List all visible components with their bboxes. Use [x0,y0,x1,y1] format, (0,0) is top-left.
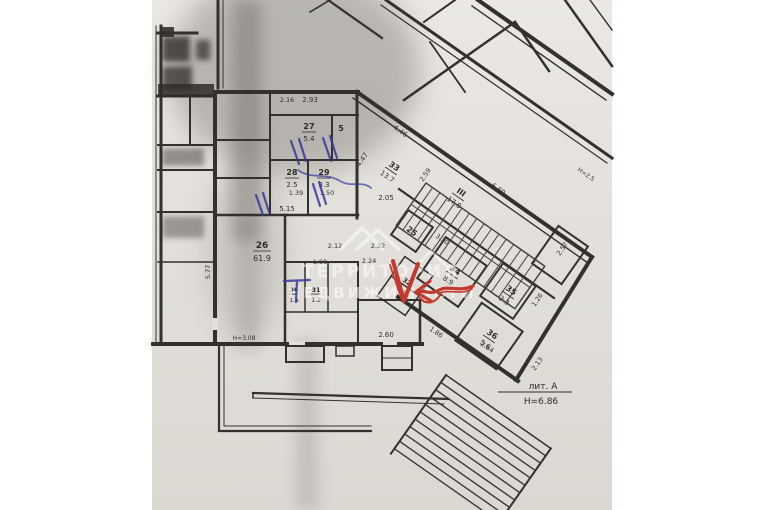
dim-1-39: 1.39 [289,189,303,197]
room-label-5: 5 [338,124,344,133]
height-main-text: Н=6.86 [524,397,559,407]
height-note-inner: Н=3.08 [233,335,256,342]
dim-2-60: 2.60 [378,331,394,339]
smudge-left [206,160,286,340]
liter-text: лит. А [529,382,559,392]
smudge-streak-bottom [296,340,318,510]
svg-text:2.5: 2.5 [286,181,297,189]
svg-text:28: 28 [286,168,298,177]
svg-text:27: 27 [303,122,314,131]
svg-text:5.4: 5.4 [303,135,315,143]
dim-2-16: 2.16 [280,96,294,104]
dim-5-15: 5.15 [279,205,295,213]
floorplan-svg: 2.16 2.93 1.39 1.50 5.15 5.77 1.99 2.12 … [0,0,770,510]
svg-text:26: 26 [256,241,269,251]
dim-2-93: 2.93 [302,96,318,104]
watermark-line1: ТЕРРИТОРИЯ [302,262,460,282]
dim-2-05: 2.05 [378,194,394,202]
svg-text:61.9: 61.9 [253,254,271,263]
dim-5-77: 5.77 [204,265,212,279]
paper-scan [152,0,612,510]
scanned-floorplan-photo: 2.16 2.93 1.39 1.50 5.15 5.77 1.99 2.12 … [0,0,770,510]
